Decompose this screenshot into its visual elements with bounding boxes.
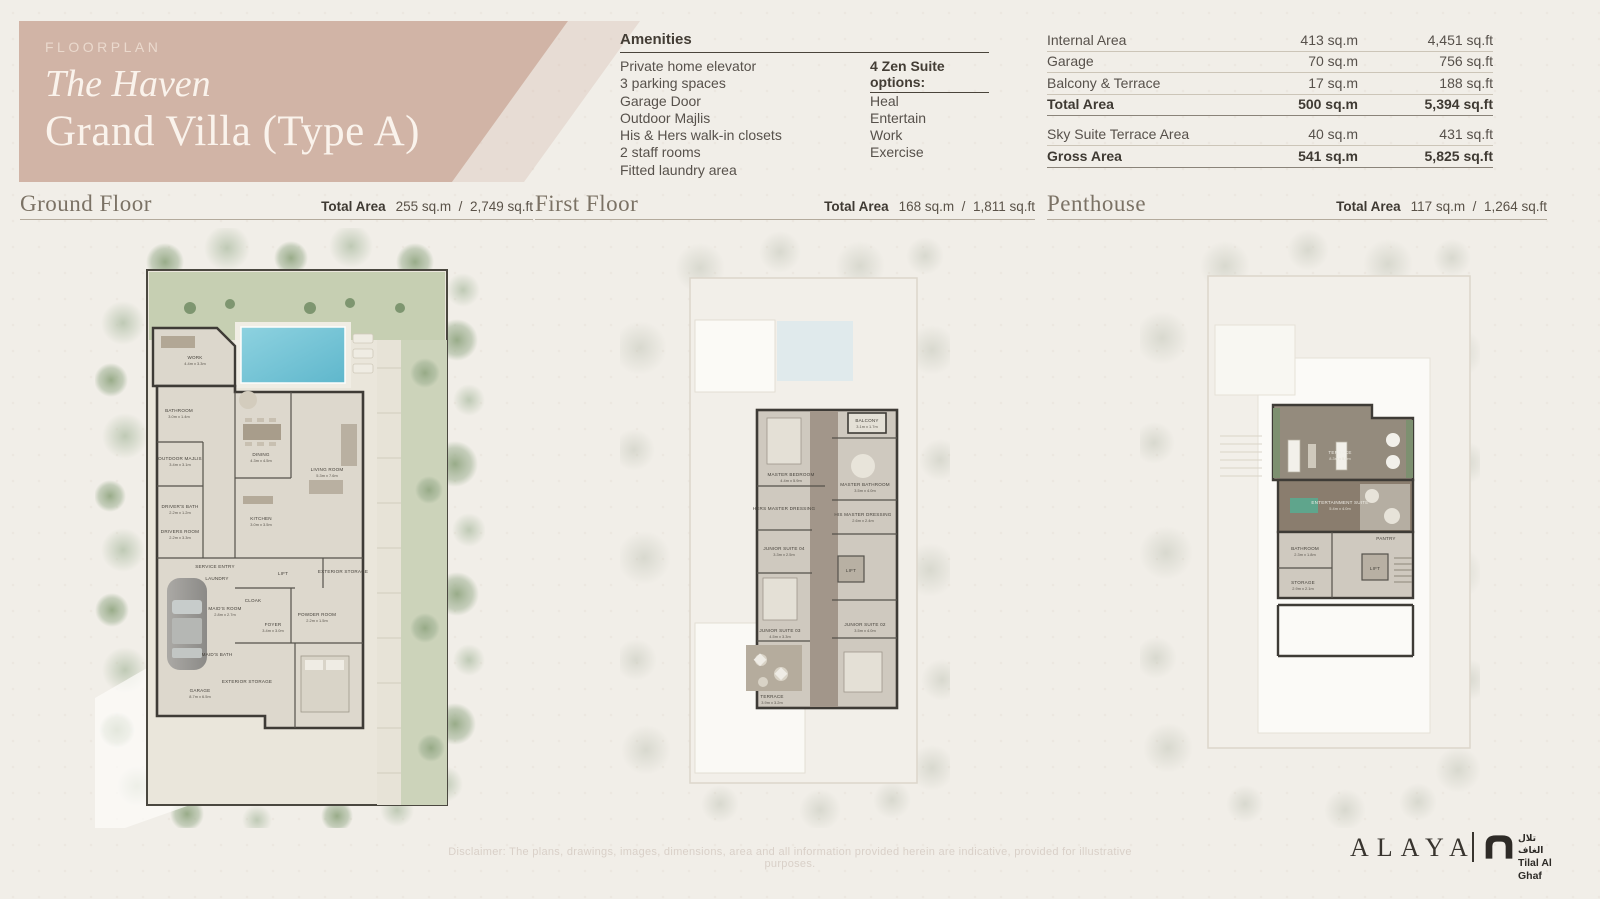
ground-floor-plan: WORK 4.4m x 3.3m BATHROOM 3.0m x 1.4m OU… (95, 228, 485, 828)
work-desk (161, 336, 195, 348)
room-label: DINING (252, 452, 270, 457)
balcony (848, 413, 886, 433)
room-label: LAUNDRY (205, 576, 228, 581)
room-label: JUNIOR SUITE 03 (759, 628, 801, 633)
total-area-label: Total Area (824, 199, 889, 214)
total-area-sqm: 255 sq.m (396, 199, 452, 214)
table-row-gross: Gross Area 541 sq.m 5,825 sq.ft (1047, 146, 1493, 168)
room-dims: 2.3m x 1.8m (1294, 552, 1315, 557)
section-header-penthouse: Penthouse Total Area117 sq.m / 1,264 sq.… (1047, 192, 1547, 220)
room-dims: 4.4m x 5.9m (780, 478, 801, 483)
room-dims: 4.4m x 3.3m (184, 361, 205, 366)
area-sqft: 756 sq.ft (1358, 51, 1493, 73)
alaya-logo: ALAYA (1350, 833, 1476, 863)
zen-item: Heal (870, 93, 989, 110)
zen-item: Entertain (870, 110, 989, 127)
room-label: POWDER ROOM (298, 612, 336, 617)
room-label: EXTERIOR STORAGE (222, 679, 272, 684)
total-area-sqm: 168 sq.m (899, 199, 955, 214)
floor-total-area: Total Area255 sq.m / 2,749 sq.ft (321, 199, 533, 214)
bed-master (767, 418, 801, 464)
brand-divider (1472, 832, 1474, 862)
room-label: WORK (187, 355, 203, 360)
area-label: Garage (1047, 51, 1253, 73)
zen-suite-options: 4 Zen Suite options: Heal Entertain Work… (870, 58, 989, 162)
zen-item: Exercise (870, 144, 989, 161)
area-sqm: 17 sq.m (1253, 73, 1358, 95)
planter-left (1273, 408, 1280, 478)
bed-junior-02 (844, 652, 882, 692)
room-dims: 3.0m x 3.5m (250, 522, 271, 527)
bar-table (1384, 508, 1400, 524)
bed-junior-03 (763, 578, 797, 620)
area-sqft: 188 sq.ft (1358, 73, 1493, 95)
room-label: EXTERIOR STORAGE (318, 569, 368, 574)
area-sqft: 431 sq.ft (1358, 125, 1493, 146)
total-area-sqft: 1,811 sq.ft (973, 199, 1035, 214)
side-garden (401, 340, 447, 805)
area-sqm: 541 sq.m (1253, 146, 1358, 168)
total-area-sqft: 1,264 sq.ft (1484, 199, 1547, 214)
floor-total-area: Total Area168 sq.m / 1,811 sq.ft (824, 199, 1035, 214)
sun-loungers (353, 334, 373, 373)
lounge-chair (239, 391, 257, 409)
living-sofa (341, 424, 357, 466)
room-label: SERVICE ENTRY (195, 564, 234, 569)
room-dims: 4.5m x 3.3m (769, 634, 790, 639)
room-label: HIS MASTER DRESSING (834, 512, 891, 517)
room-label: FOYER (265, 622, 282, 627)
total-area-sqm: 117 sq.m (1411, 199, 1466, 214)
brand-lockup: ALAYA تلال الغاف Tilal Al Ghaf (1350, 824, 1560, 874)
room-dims: 4.3m x 4.5m (250, 458, 271, 463)
room-label: STORAGE (1291, 580, 1315, 585)
room-dims: 3.4m x 3.0m (262, 628, 283, 633)
zen-item: Work (870, 127, 989, 144)
room-label: ENTERTAINMENT SUITE (1311, 500, 1368, 505)
floor-name: Ground Floor (20, 191, 152, 217)
room-dims: 3.9m x 3.2m (761, 700, 782, 705)
room-dims: 5.4m x 4.0m (1329, 506, 1350, 511)
terrace-deck (746, 645, 802, 691)
divider: / (962, 199, 966, 214)
room-label: MASTER BEDROOM (768, 472, 815, 477)
room-dims: 3.4m x 3.1m (169, 462, 190, 467)
area-sqft: 4,451 sq.ft (1358, 30, 1493, 51)
amenities-panel: Amenities Private home elevator 3 parkin… (620, 31, 989, 179)
first-floor-plan: BALCONY 3.1m x 1.7m MASTER BEDROOM 4.4m … (620, 228, 950, 828)
room-label: OUTDOOR MAJLIS (158, 456, 202, 461)
bed (301, 656, 349, 712)
room-dims: 3.1m x 1.7m (856, 424, 877, 429)
floor-total-area: Total Area117 sq.m / 1,264 sq.ft (1336, 199, 1547, 214)
room-label: BATHROOM (165, 408, 193, 413)
room-label: TERRACE (1328, 450, 1351, 455)
room-label: JUNIOR SUITE 02 (844, 622, 886, 627)
total-area-label: Total Area (321, 199, 386, 214)
room-label: LIVING ROOM (311, 467, 344, 472)
area-sqm: 40 sq.m (1253, 125, 1358, 146)
table-row: Internal Area 413 sq.m 4,451 sq.ft (1047, 30, 1493, 51)
room-label: LIFT (846, 568, 856, 573)
room-dims: 2.8m x 2.7m (214, 612, 235, 617)
page-title-project: The Haven (45, 61, 420, 107)
dining-table (243, 424, 281, 440)
divider: / (459, 199, 463, 214)
pool (241, 327, 345, 383)
room-label: MAID'S BATH (202, 652, 233, 657)
room-dims: 2.9m x 2.1m (1292, 586, 1313, 591)
area-sqm: 413 sq.m (1253, 30, 1358, 51)
room-label: HERS MASTER DRESSING (753, 506, 816, 511)
room-label: MASTER BATHROOM (840, 482, 890, 487)
living-sofa-2 (309, 480, 343, 494)
area-sqft: 5,394 sq.ft (1358, 94, 1493, 116)
penthouse-plan-drawing: TERRACE 8.3m x 5.0m ENTERTAINMENT SUITE … (1140, 228, 1480, 828)
tilal-al-ghaf-arch-icon (1484, 832, 1514, 867)
amenity-item: Fitted laundry area (620, 162, 989, 179)
floor-name: First Floor (535, 191, 638, 217)
room-dims: 3.5m x 4.0m (854, 628, 875, 633)
page-title-unit: Grand Villa (Type A) (45, 107, 420, 157)
first-floor-plan-drawing: BALCONY 3.1m x 1.7m MASTER BEDROOM 4.4m … (620, 228, 950, 828)
area-sqm: 500 sq.m (1253, 94, 1358, 116)
floor-name: Penthouse (1047, 191, 1146, 217)
room-label: DRIVERS ROOM (161, 529, 199, 534)
penthouse-plan: TERRACE 8.3m x 5.0m ENTERTAINMENT SUITE … (1140, 228, 1480, 828)
roof-below (695, 320, 775, 392)
room-dims: 3.5m x 4.0m (854, 488, 875, 493)
room-dims: 3.0m x 1.4m (168, 414, 189, 419)
room-dims: 5.3m x 7.6m (316, 473, 337, 478)
corridor (810, 411, 838, 707)
room-label: LIFT (1370, 566, 1380, 571)
table-row: Balcony & Terrace 17 sq.m 188 sq.ft (1047, 73, 1493, 95)
partner-name-english: Tilal Al Ghaf (1518, 857, 1560, 883)
pool-faded (777, 321, 853, 381)
area-sqft: 5,825 sq.ft (1358, 146, 1493, 168)
kitchen-island (243, 496, 273, 504)
section-header-ground-floor: Ground Floor Total Area255 sq.m / 2,749 … (20, 192, 533, 220)
table-row: Sky Suite Terrace Area 40 sq.m 431 sq.ft (1047, 125, 1493, 146)
room-dims: 8.7m x 6.5m (189, 694, 210, 699)
partner-name-arabic: تلال الغاف (1518, 833, 1560, 857)
area-label: Total Area (1047, 94, 1253, 116)
room-label: GARAGE (190, 688, 211, 693)
area-label: Sky Suite Terrace Area (1047, 125, 1253, 146)
room-label: PANTRY (1376, 536, 1395, 541)
room-label: BALCONY (855, 418, 878, 423)
room-label: CLOAK (245, 598, 262, 603)
room-dims: 2.2m x 3.3m (169, 535, 190, 540)
room-dims: 8.3m x 5.0m (1329, 456, 1350, 461)
amenities-heading: Amenities (620, 31, 989, 53)
room-dims: 2.6m x 2.4m (852, 518, 873, 523)
section-header-first-floor: First Floor Total Area168 sq.m / 1,811 s… (535, 192, 1035, 220)
table-row: Garage 70 sq.m 756 sq.ft (1047, 51, 1493, 73)
area-label: Gross Area (1047, 146, 1253, 168)
planter-right (1406, 420, 1413, 478)
area-label: Balcony & Terrace (1047, 73, 1253, 95)
room-label: MAID'S ROOM (208, 606, 241, 611)
ground-floor-plan-drawing: WORK 4.4m x 3.3m BATHROOM 3.0m x 1.4m OU… (95, 228, 485, 828)
area-label: Internal Area (1047, 30, 1253, 51)
divider: / (1473, 199, 1477, 214)
roof-below-2 (1215, 325, 1295, 395)
total-area-label: Total Area (1336, 199, 1401, 214)
room-label: LIFT (278, 571, 288, 576)
header-eyebrow: FLOORPLAN (45, 39, 420, 55)
total-area-sqft: 2,749 sq.ft (470, 199, 533, 214)
disclaimer-text: Disclaimer: The plans, drawings, images,… (430, 846, 1150, 870)
area-sqm: 70 sq.m (1253, 51, 1358, 73)
room-dims: 2.2m x 1.5m (306, 618, 327, 623)
area-summary-table: Internal Area 413 sq.m 4,451 sq.ft Garag… (1047, 30, 1493, 168)
zen-heading: 4 Zen Suite options: (870, 58, 989, 93)
room-label: DRIVER'S BATH (161, 504, 198, 509)
room-label: TERRACE (760, 694, 783, 699)
table-row-total: Total Area 500 sq.m 5,394 sq.ft (1047, 94, 1493, 116)
floorplan-page: FLOORPLAN The Haven Grand Villa (Type A)… (0, 0, 1600, 899)
room-label: KITCHEN (250, 516, 272, 521)
room-label: JUNIOR SUITE 04 (763, 546, 805, 551)
room-label: BATHROOM (1291, 546, 1319, 551)
side-path (377, 340, 401, 805)
room-dims: 2.2m x 1.2m (169, 510, 190, 515)
room-dims: 3.3m x 2.5m (773, 552, 794, 557)
master-tub (851, 454, 875, 478)
